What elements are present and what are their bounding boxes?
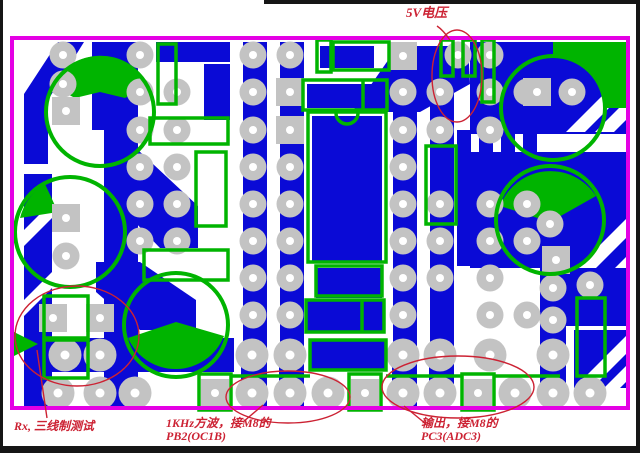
- pcb-drawing: [0, 0, 640, 453]
- annotation-rx-label: Rx, 三线制测试: [14, 420, 94, 433]
- annotation-output-label: 输出，接M8的 PC3(ADC3): [421, 417, 498, 443]
- annotation-1khz-label: 1KHz方波，接M8的 PB2(OC1B): [166, 417, 271, 443]
- annotation-output-line2: PC3(ADC3): [421, 430, 498, 443]
- annotation-1khz-line2: PB2(OC1B): [166, 430, 271, 443]
- pcb-screenshot: 5V电压 Rx, 三线制测试 1KHz方波，接M8的 PB2(OC1B) 输出，…: [0, 0, 640, 453]
- annotation-5v-label: 5V电压: [406, 6, 447, 19]
